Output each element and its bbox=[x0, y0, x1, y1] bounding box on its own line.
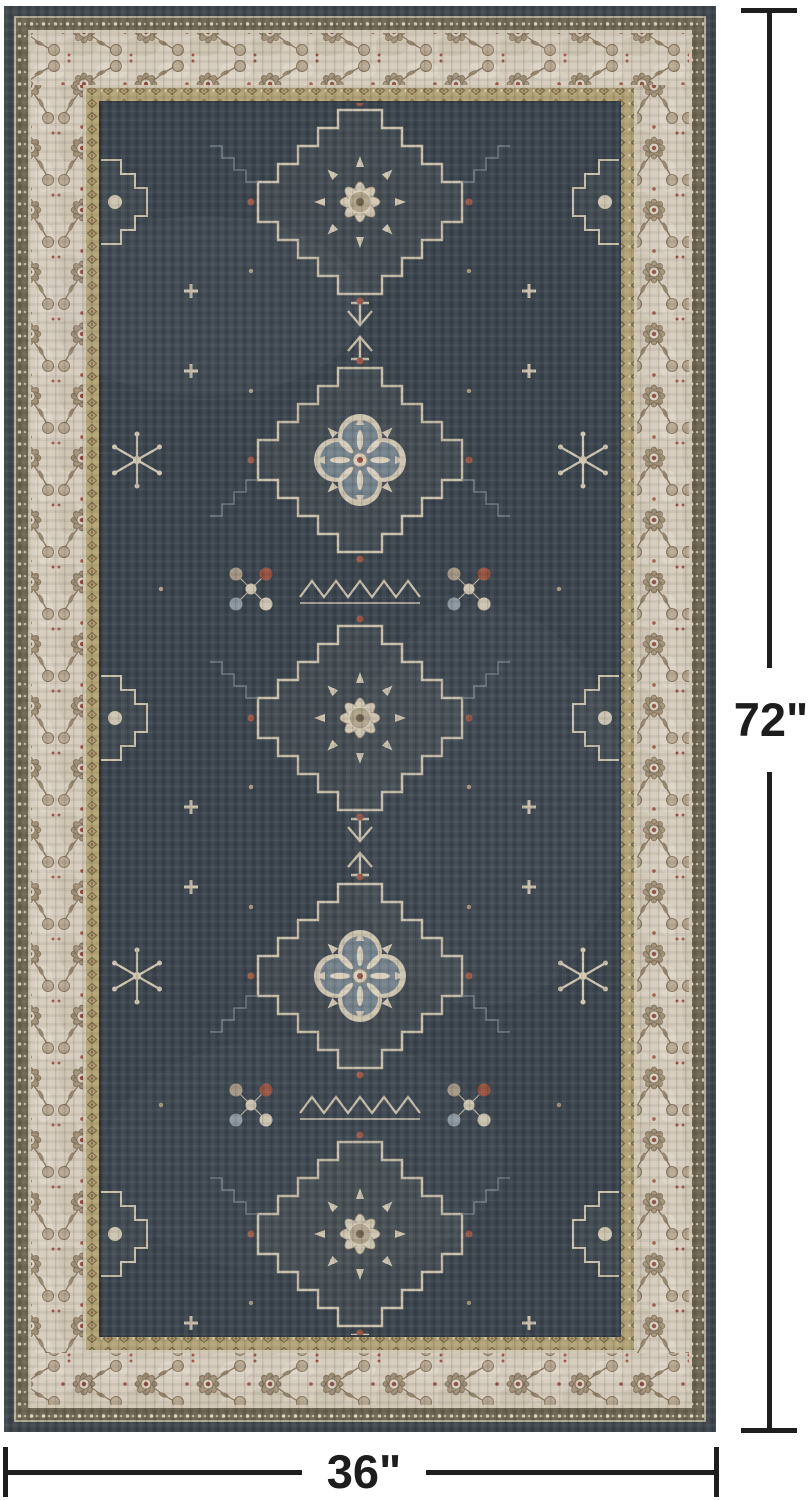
product-image: 72" 36" bbox=[0, 0, 809, 1500]
width-dimension-line-left bbox=[8, 1470, 302, 1475]
width-dimension-right-cap bbox=[714, 1447, 719, 1497]
width-dimension-line-right bbox=[426, 1470, 714, 1475]
width-dimension-label: 36" bbox=[306, 1444, 422, 1500]
rug-vector bbox=[4, 6, 716, 1432]
rug-image bbox=[4, 6, 716, 1432]
height-dimension-line-top bbox=[767, 13, 772, 668]
height-dimension-bottom-cap bbox=[741, 1428, 797, 1433]
rug-texture-overlay bbox=[4, 6, 716, 1432]
height-dimension-label: 72" bbox=[721, 692, 809, 748]
height-dimension-line-bottom bbox=[767, 772, 772, 1428]
